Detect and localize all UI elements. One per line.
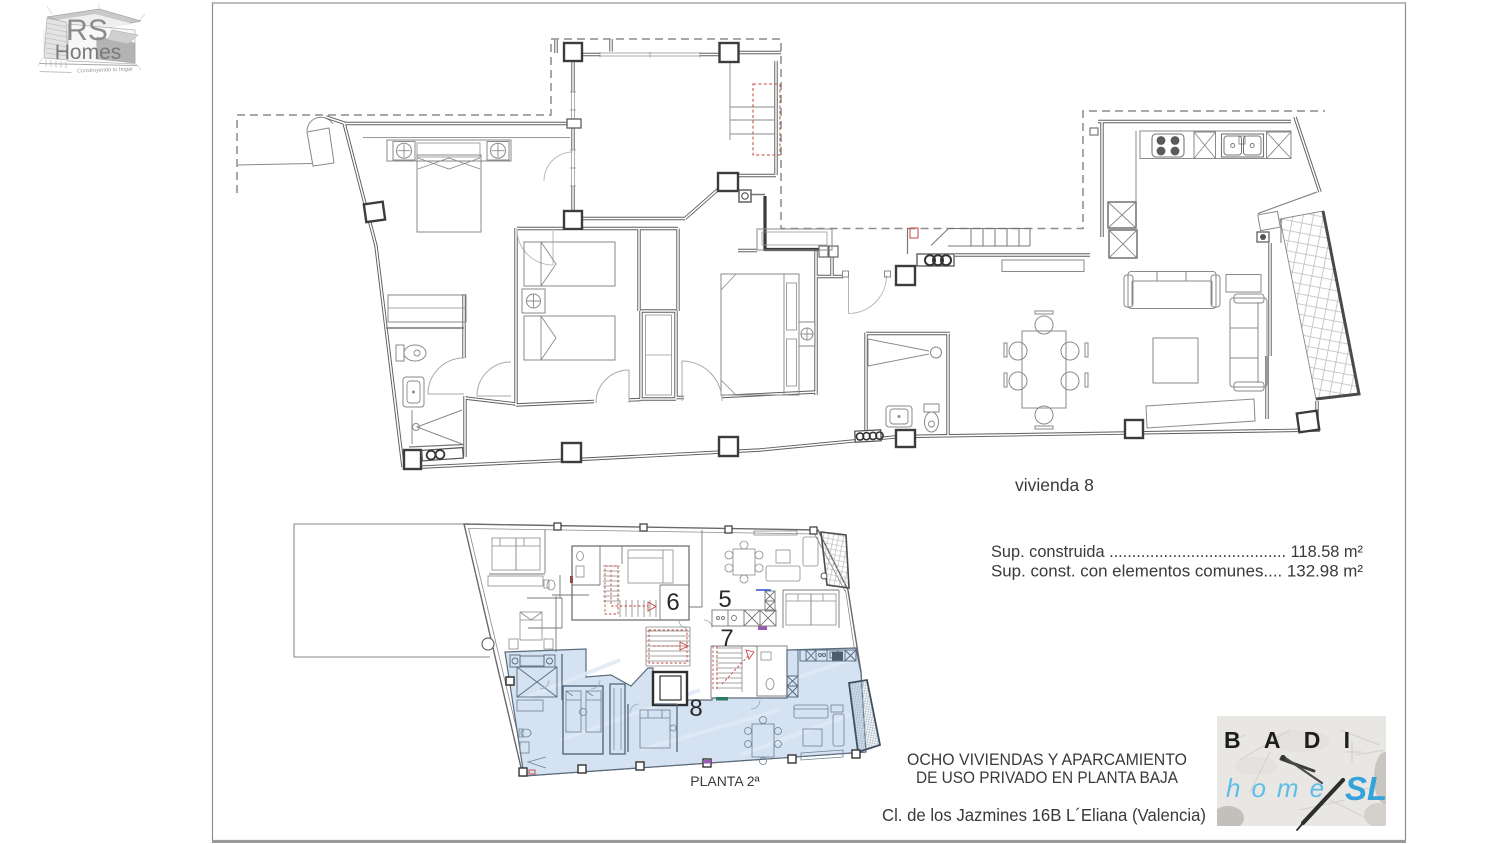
svg-text:5: 5 <box>718 586 731 613</box>
svg-text:Sup. const. con elementos comu: Sup. const. con elementos comunes.... 13… <box>991 563 1364 581</box>
svg-text:vivienda 8: vivienda 8 <box>1015 475 1094 495</box>
svg-text:Cl. de los Jazmines 16B L´Elia: Cl. de los Jazmines 16B L´Eliana (Valenc… <box>882 805 1206 825</box>
svg-text:Homes: Homes <box>55 41 122 64</box>
svg-text:6: 6 <box>666 589 679 616</box>
svg-text:DE USO PRIVADO EN PLANTA BAJA: DE USO PRIVADO EN PLANTA BAJA <box>916 768 1179 787</box>
svg-text:Sup. construida ..............: Sup. construida ........................… <box>991 543 1363 561</box>
svg-text:8: 8 <box>689 695 702 722</box>
svg-text:home: home <box>1226 773 1335 803</box>
svg-text:SL: SL <box>1345 770 1387 807</box>
svg-text:BADI: BADI <box>1224 727 1374 753</box>
svg-text:7: 7 <box>720 625 733 652</box>
svg-text:PLANTA 2ª: PLANTA 2ª <box>690 773 760 789</box>
svg-text:OCHO VIVIENDAS Y APARCAMIENTO: OCHO VIVIENDAS Y APARCAMIENTO <box>907 750 1187 769</box>
